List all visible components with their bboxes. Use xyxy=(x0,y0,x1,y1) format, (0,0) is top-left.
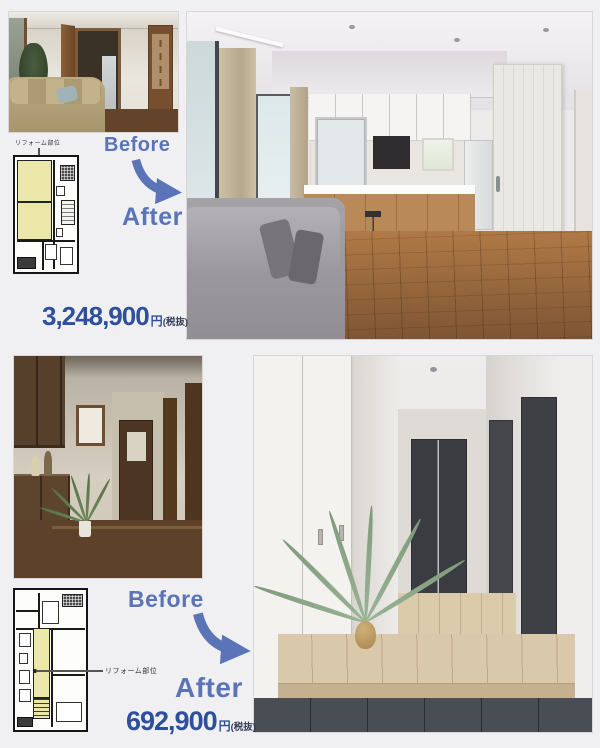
price-amount: 692,900 xyxy=(126,706,217,736)
upper-cabinet xyxy=(14,356,65,448)
price-amount: 3,248,900 xyxy=(42,301,149,331)
plan-fixture xyxy=(19,689,31,702)
houseplant xyxy=(63,467,108,538)
floor-plan-hallway xyxy=(13,588,88,732)
plan-entrance xyxy=(17,717,33,727)
decor-bottle xyxy=(44,451,52,475)
price-tax-note: (税抜) xyxy=(163,317,188,328)
door-panes xyxy=(152,34,169,89)
before-label: Before xyxy=(104,134,170,157)
plan-fixture xyxy=(56,186,65,196)
plan-bathroom-hatch xyxy=(60,165,75,181)
door-window xyxy=(127,432,146,460)
renovated-room-highlight xyxy=(17,202,52,240)
after-photo-hallway xyxy=(254,356,592,732)
renovation-price: 3,248,900円(税抜) xyxy=(42,301,188,332)
plant-pot xyxy=(79,521,91,537)
price-tax-note: (税抜) xyxy=(231,722,256,733)
plan-fixture xyxy=(19,633,31,647)
before-label: Before xyxy=(128,586,204,613)
plan-wall xyxy=(51,674,85,676)
decor-bottle xyxy=(31,456,40,476)
after-photo-living-room xyxy=(187,12,592,339)
kitchen-window xyxy=(422,138,454,171)
paneled-door xyxy=(148,25,174,119)
palm-plant xyxy=(322,499,410,649)
side-door xyxy=(163,398,176,538)
old-sofa xyxy=(9,77,105,132)
plan-fixture xyxy=(56,228,63,237)
platform-edge xyxy=(278,683,575,699)
plan-fixture xyxy=(42,601,59,623)
before-after-arrow-icon xyxy=(188,610,254,668)
after-label: After xyxy=(122,203,183,232)
after-label: After xyxy=(175,672,243,704)
corridor-end-door xyxy=(119,420,153,531)
renovation-brochure-page: リフォーム部位 Before After 3,248,900円(税抜) xyxy=(0,0,600,748)
floor-plan-living xyxy=(13,155,79,274)
before-after-arrow-icon xyxy=(126,157,186,207)
plan-wall xyxy=(38,593,40,628)
counter-top xyxy=(304,185,474,194)
plan-fixture xyxy=(19,670,30,684)
downlight xyxy=(430,367,437,372)
renovated-room-highlight xyxy=(17,160,52,201)
side-door xyxy=(521,397,557,655)
plan-stairs xyxy=(61,200,75,225)
renovated-hallway-highlight xyxy=(33,628,50,698)
plan-wall xyxy=(17,240,74,242)
plan-stairs xyxy=(33,698,50,719)
plan-fixture xyxy=(45,244,57,260)
price-unit: 円 xyxy=(151,314,163,328)
door-handle xyxy=(496,176,499,192)
tile-floor xyxy=(254,698,592,732)
annotation-pointer-line xyxy=(36,670,103,672)
picture-frame xyxy=(76,405,105,447)
plan-wall xyxy=(16,610,37,612)
plan-fixture xyxy=(60,247,74,265)
before-photo-living-room xyxy=(9,12,178,132)
plan-fixture xyxy=(56,702,82,722)
plan-wall xyxy=(51,628,53,727)
gray-sofa xyxy=(187,198,345,339)
plan-fixture xyxy=(19,653,28,664)
plan-annotation-label: リフォーム部位 xyxy=(105,666,157,676)
plant-pot xyxy=(355,621,376,650)
plan-annotation-label: リフォーム部位 xyxy=(15,138,60,147)
plan-entrance xyxy=(17,257,36,269)
renovation-price: 692,900円(税抜) xyxy=(126,706,256,737)
plan-bathroom-hatch xyxy=(62,594,83,607)
price-unit: 円 xyxy=(219,719,231,733)
appliance-nook xyxy=(373,136,409,169)
before-photo-hallway xyxy=(14,356,202,578)
